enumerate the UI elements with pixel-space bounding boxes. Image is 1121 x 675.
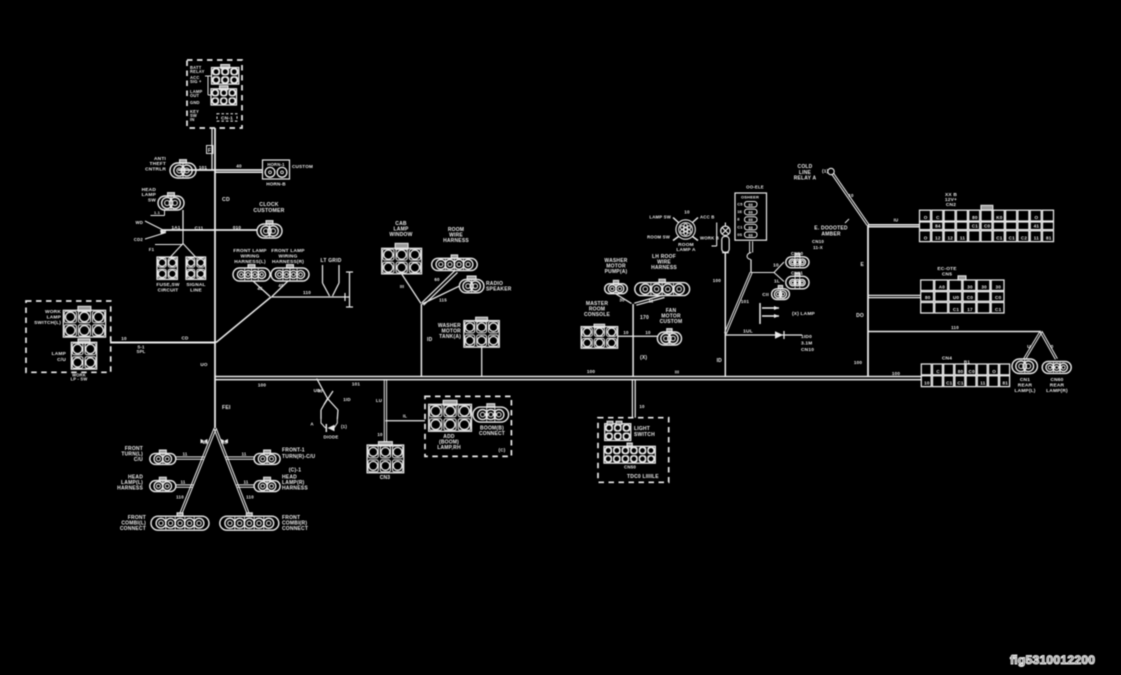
svg-text:CN2: CN2 (946, 202, 956, 208)
svg-text:C: C (936, 215, 940, 220)
svg-text:O: O (924, 236, 928, 241)
svg-text:10: 10 (639, 404, 645, 409)
svg-text:C1: C1 (953, 307, 960, 312)
svg-text:11-X: 11-X (813, 245, 823, 250)
svg-text:O: O (924, 215, 928, 220)
svg-text:45: 45 (278, 283, 284, 288)
svg-text:TANK(A): TANK(A) (439, 334, 461, 340)
svg-text:101: 101 (199, 165, 208, 170)
svg-text:C1: C1 (957, 381, 964, 386)
svg-text:170: 170 (640, 315, 649, 321)
svg-text:12: 12 (947, 236, 953, 241)
svg-text:WIRING: WIRING (278, 253, 297, 259)
svg-text:III: III (400, 284, 404, 289)
svg-text:30: 30 (995, 285, 1001, 290)
svg-text:EC-OTE: EC-OTE (937, 266, 957, 272)
svg-text:LU: LU (376, 398, 382, 403)
svg-text:CN10: CN10 (801, 347, 814, 353)
svg-text:LAMP(R): LAMP(R) (1046, 388, 1068, 394)
svg-text:45: 45 (222, 440, 228, 445)
svg-text:CN10: CN10 (812, 239, 824, 244)
svg-text:10: 10 (848, 193, 854, 198)
svg-text:FRONT-1: FRONT-1 (282, 448, 305, 454)
svg-text:A0: A0 (939, 285, 946, 290)
svg-text:30: 30 (967, 285, 973, 290)
svg-text:III: III (675, 370, 679, 375)
svg-text:C11: C11 (195, 226, 204, 231)
svg-text:LT GRID: LT GRID (320, 258, 341, 264)
svg-text:SPEAKER: SPEAKER (486, 287, 512, 293)
svg-text:HARNESS(R): HARNESS(R) (272, 259, 304, 265)
svg-text:C0: C0 (969, 369, 976, 374)
svg-text:11: 11 (180, 480, 185, 485)
svg-text:HORN-B: HORN-B (266, 182, 286, 187)
svg-text:11: 11 (960, 236, 966, 241)
svg-text:C1: C1 (972, 224, 979, 229)
svg-text:CONNECT: CONNECT (120, 526, 146, 532)
svg-text:C1: C1 (737, 224, 743, 229)
svg-text:E: E (860, 262, 864, 268)
svg-text:CN60: CN60 (1050, 377, 1063, 383)
svg-text:O: O (992, 369, 996, 374)
svg-text:100: 100 (713, 278, 722, 283)
svg-text:CD: CD (222, 197, 230, 203)
svg-text:ID: ID (717, 358, 723, 364)
svg-text:WD: WD (135, 220, 143, 225)
svg-text:81: 81 (1046, 236, 1052, 241)
svg-text:CONNECT: CONNECT (479, 431, 505, 437)
svg-text:CUSTOM: CUSTOM (660, 319, 683, 325)
svg-text:10: 10 (623, 330, 629, 335)
svg-text:C1: C1 (996, 236, 1003, 241)
svg-text:010: 010 (233, 225, 242, 230)
svg-text:80: 80 (958, 369, 964, 374)
svg-text:(1): (1) (341, 424, 347, 429)
svg-text:FRONT LAMP: FRONT LAMP (271, 248, 305, 254)
svg-text:TURN(R)-C/U: TURN(R)-C/U (282, 454, 315, 460)
svg-text:40: 40 (202, 440, 208, 445)
svg-text:IL: IL (403, 414, 407, 419)
svg-text:C5: C5 (737, 202, 743, 207)
svg-text:CONSOLE: CONSOLE (584, 312, 611, 318)
svg-text:30: 30 (619, 298, 625, 303)
svg-text:10: 10 (121, 336, 127, 341)
svg-text:REAR: REAR (1018, 383, 1033, 389)
svg-text:88: 88 (748, 226, 753, 230)
svg-text:B1: B1 (964, 360, 970, 365)
svg-text:WORK: WORK (45, 309, 61, 315)
svg-text:100: 100 (892, 371, 901, 376)
svg-text:LAMP: LAMP (142, 192, 157, 198)
svg-text:11: 11 (243, 480, 248, 485)
svg-text:11: 11 (980, 381, 986, 386)
svg-text:88: 88 (748, 211, 753, 215)
svg-text:40: 40 (317, 389, 323, 394)
svg-text:C: C (936, 369, 940, 374)
svg-text:CN3: CN3 (380, 475, 391, 481)
svg-text:OSHEER: OSHEER (741, 195, 759, 200)
svg-text:30: 30 (981, 285, 987, 290)
svg-text:RELAY A: RELAY A (794, 176, 817, 182)
svg-text:HARNESS: HARNESS (651, 265, 677, 271)
svg-text:REAR: REAR (1050, 383, 1065, 389)
svg-text:LAMP: LAMP (47, 314, 62, 320)
svg-text:1ID: 1ID (343, 397, 350, 402)
svg-text:HARNESS: HARNESS (117, 486, 143, 492)
svg-text:88: 88 (748, 233, 753, 237)
svg-text:CUSTOM: CUSTOM (292, 164, 313, 169)
svg-text:CD: CD (181, 336, 189, 341)
svg-text:81: 81 (1003, 381, 1009, 386)
svg-text:11: 11 (1034, 236, 1040, 241)
svg-text:LAMP: LAMP (52, 351, 67, 357)
svg-text:40: 40 (236, 164, 242, 169)
svg-text:SWITCH: SWITCH (634, 432, 655, 438)
svg-text:100: 100 (587, 369, 596, 374)
svg-text:ID: ID (427, 337, 433, 343)
svg-text:115: 115 (439, 298, 447, 303)
svg-text:IU: IU (894, 218, 899, 223)
svg-text:LAMP A: LAMP A (676, 247, 696, 253)
svg-text:RELAY: RELAY (190, 69, 205, 74)
svg-text:DO: DO (856, 313, 864, 319)
svg-text:HEAD: HEAD (142, 187, 157, 193)
svg-text:IN: IN (190, 117, 195, 122)
svg-text:CD2: CD2 (134, 237, 144, 242)
svg-text:1E: 1E (737, 209, 742, 214)
svg-text:CIRCUIT: CIRCUIT (158, 287, 179, 293)
svg-text:(X): (X) (640, 355, 647, 361)
svg-text:11: 11 (182, 452, 187, 457)
svg-text:110: 110 (176, 495, 184, 500)
svg-text:SWITCH(L): SWITCH(L) (34, 320, 61, 326)
svg-text:HORN-1: HORN-1 (267, 162, 285, 167)
svg-text:110: 110 (303, 290, 311, 295)
svg-text:C1: C1 (946, 381, 953, 386)
svg-text:O: O (1035, 215, 1039, 220)
svg-text:HARNESS: HARNESS (282, 486, 308, 492)
svg-text:U: U (1027, 344, 1031, 350)
svg-text:LP - SW: LP - SW (71, 377, 88, 382)
svg-text:E. DOOOTED: E. DOOOTED (814, 226, 848, 232)
svg-text:10: 10 (773, 263, 779, 269)
svg-text:TDC0 LIIIILE: TDC0 LIIIILE (627, 474, 659, 480)
svg-text:10: 10 (924, 381, 930, 386)
svg-text:C/U: C/U (134, 457, 143, 463)
svg-text:CN5: CN5 (942, 271, 952, 277)
svg-text:LAMP SW: LAMP SW (649, 215, 671, 220)
svg-text:41: 41 (1034, 224, 1040, 229)
svg-text:80: 80 (972, 215, 978, 220)
svg-text:SIGNAL: SIGNAL (186, 282, 205, 288)
svg-text:110: 110 (246, 495, 254, 500)
svg-text:UO: UO (200, 362, 208, 367)
svg-text:U0: U0 (953, 295, 960, 300)
svg-text:84: 84 (935, 224, 941, 229)
svg-text:12: 12 (935, 236, 941, 241)
svg-text:DIODE: DIODE (324, 435, 339, 440)
svg-text:THEFT: THEFT (150, 161, 166, 167)
svg-text:SIG +: SIG + (190, 79, 202, 84)
svg-text:(X) LAMP: (X) LAMP (792, 311, 816, 317)
svg-text:CUSTOMER: CUSTOMER (253, 208, 284, 214)
svg-text:CN50: CN50 (624, 465, 636, 470)
svg-text:1.1: 1.1 (154, 210, 161, 215)
svg-text:10: 10 (684, 210, 690, 215)
svg-text:10: 10 (645, 330, 651, 335)
svg-text:C1: C1 (1009, 236, 1016, 241)
svg-text:F1: F1 (149, 247, 155, 252)
svg-text:FEI: FEI (222, 405, 231, 411)
svg-text:SW: SW (148, 197, 156, 203)
svg-text:FUSE,SW: FUSE,SW (156, 282, 180, 288)
svg-text:GND: GND (190, 100, 200, 105)
svg-text:(C): (C) (499, 448, 506, 453)
svg-text:100: 100 (854, 360, 863, 365)
svg-text:80: 80 (925, 295, 931, 300)
svg-text:88: 88 (748, 218, 753, 222)
svg-text:1L: 1L (774, 279, 780, 285)
svg-text:1ID0: 1ID0 (801, 334, 812, 340)
svg-text:CN-1: CN-1 (221, 116, 233, 122)
svg-text:SPL: SPL (137, 349, 146, 354)
svg-text:PUMP(A): PUMP(A) (605, 269, 628, 275)
svg-text:fig5310012200: fig5310012200 (1010, 653, 1095, 667)
svg-text:C2: C2 (1021, 236, 1028, 241)
svg-text:100: 100 (258, 383, 267, 388)
svg-text:HARNESS(L): HARNESS(L) (234, 259, 266, 265)
svg-text:ANTI: ANTI (154, 156, 166, 162)
svg-text:CONNECT: CONNECT (282, 526, 308, 532)
svg-text:10: 10 (377, 432, 383, 437)
svg-text:LAMP,RH: LAMP,RH (437, 445, 461, 451)
svg-text:CN10: CN10 (791, 251, 804, 256)
svg-text:LINE: LINE (190, 287, 202, 293)
svg-text:C0: C0 (984, 224, 991, 229)
svg-text:WINDOW: WINDOW (389, 232, 412, 238)
svg-text:C0: C0 (967, 295, 974, 300)
svg-text:1UL: 1UL (743, 329, 753, 335)
svg-text:45: 45 (257, 286, 263, 291)
svg-text:88: 88 (748, 203, 753, 207)
svg-text:1A1: 1A1 (171, 225, 180, 230)
svg-text:WIRING: WIRING (240, 253, 259, 259)
svg-text:C/U: C/U (57, 357, 66, 363)
svg-text:0: 0 (1051, 344, 1054, 350)
svg-text:CNTRLR: CNTRLR (145, 166, 166, 172)
svg-text:C0: C0 (995, 295, 1002, 300)
svg-text:17: 17 (967, 307, 973, 312)
svg-text:OUT: OUT (190, 93, 200, 98)
svg-text:CII: CII (762, 292, 769, 298)
svg-text:OO-ELE: OO-ELE (746, 185, 764, 190)
svg-text:K0: K0 (996, 215, 1003, 220)
svg-text:CN11: CN11 (791, 271, 803, 276)
svg-text:(C)-1: (C)-1 (289, 468, 301, 474)
svg-text:AMBER: AMBER (821, 232, 841, 238)
svg-text:110: 110 (951, 325, 959, 330)
svg-text:C1: C1 (995, 307, 1002, 312)
svg-text:FRONT LAMP: FRONT LAMP (233, 248, 267, 254)
svg-text:101: 101 (741, 299, 750, 304)
svg-text:11: 11 (241, 452, 246, 457)
svg-text:ACC B: ACC B (700, 215, 715, 220)
svg-text:60: 60 (434, 277, 440, 282)
svg-text:0S: 0S (737, 232, 742, 237)
svg-text:11: 11 (648, 299, 653, 304)
svg-text:ROOM SW: ROOM SW (647, 235, 671, 240)
svg-text:HARNESS: HARNESS (443, 238, 469, 244)
svg-text:101: 101 (352, 382, 361, 387)
svg-text:LAMP(L): LAMP(L) (1014, 388, 1035, 394)
svg-text:CN4: CN4 (942, 356, 952, 362)
svg-text:3.1M: 3.1M (801, 341, 812, 347)
svg-text:CN1: CN1 (1020, 377, 1030, 383)
